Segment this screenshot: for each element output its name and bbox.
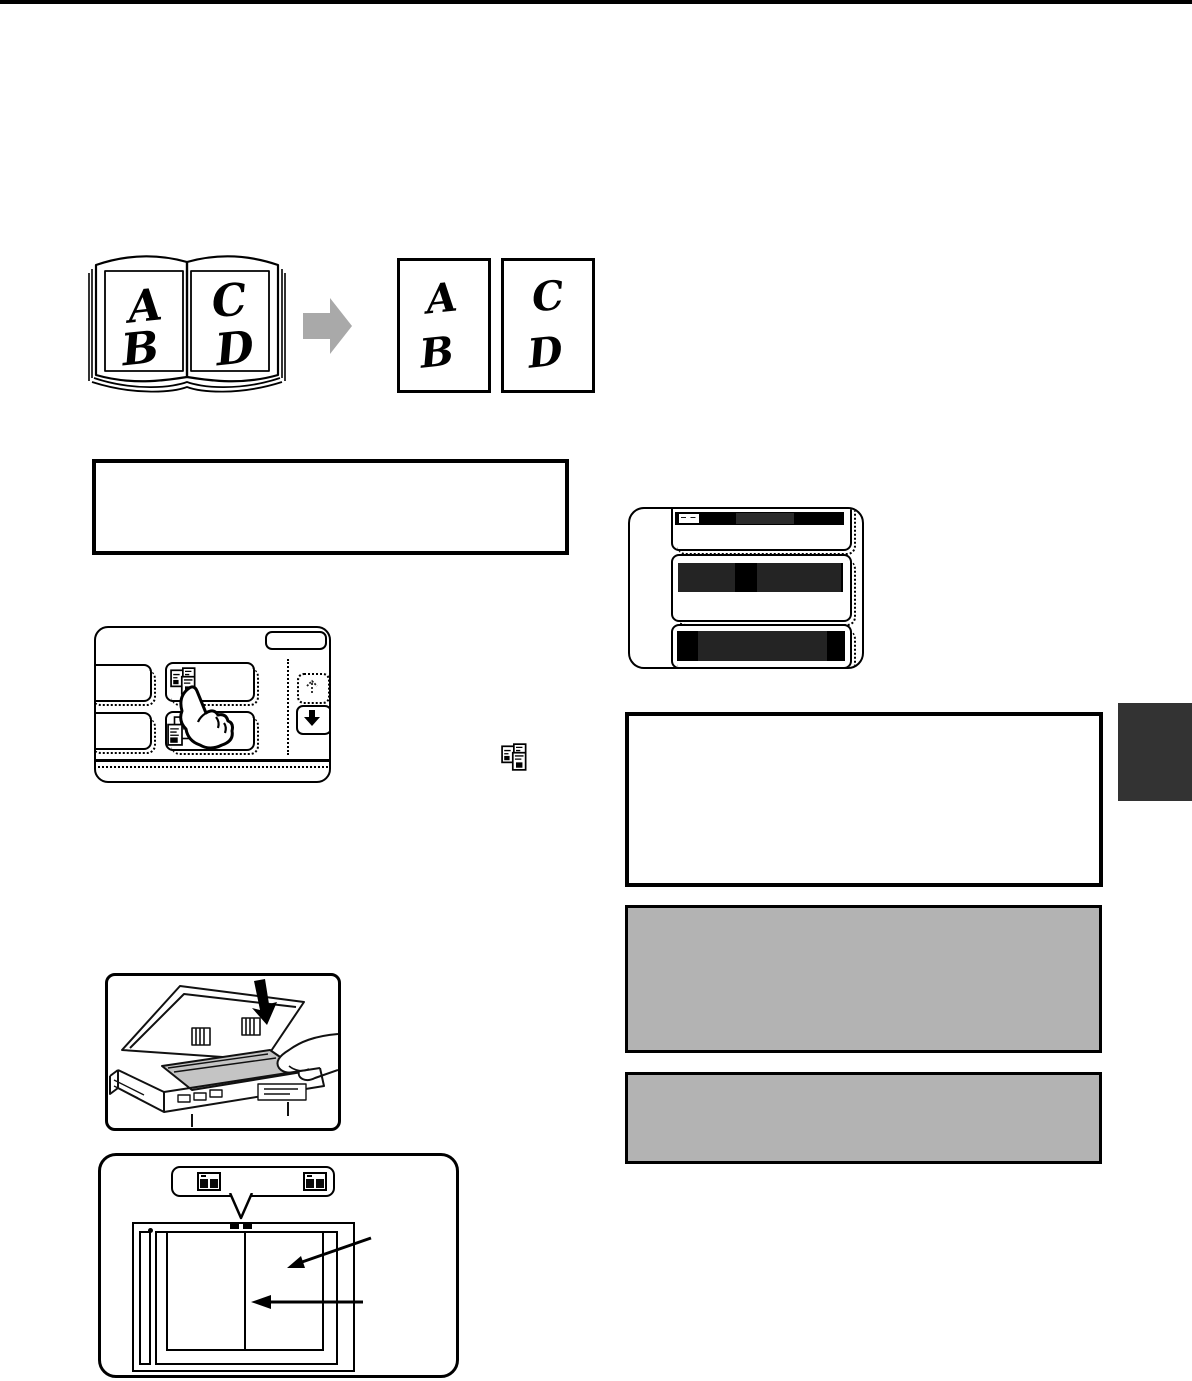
chapter-side-tab — [1118, 703, 1192, 801]
instruction-box — [92, 459, 569, 555]
sheet-letter: C — [530, 271, 567, 321]
sheet-letter: B — [418, 327, 457, 377]
redaction-block — [757, 563, 841, 592]
scroll-up-key — [297, 673, 330, 704]
screen-bottom-dotted-rule — [94, 766, 331, 768]
copier-illustration — [108, 976, 338, 1128]
note-box — [625, 712, 1103, 887]
screen-header-dash-box: ‒ ‒ — [679, 514, 699, 523]
size-mark — [230, 1222, 239, 1229]
scroll-down-key — [296, 705, 331, 735]
touch-panel-screen — [94, 626, 331, 783]
sheet-letter: A — [424, 274, 460, 324]
open-book-mark-icon — [197, 1172, 221, 1191]
redacted-key-2 — [671, 554, 852, 622]
screen-label-box — [265, 631, 327, 650]
book-letter: B — [117, 322, 161, 377]
redacted-key-3-bar — [677, 631, 845, 661]
gray-note-box-1 — [625, 905, 1102, 1053]
transform-arrow-icon — [303, 296, 353, 356]
book-placement-diagram — [98, 1153, 459, 1378]
redacted-title-block — [736, 513, 794, 524]
book-centerline — [244, 1231, 246, 1351]
dash-marks: ‒ ‒ — [681, 514, 697, 522]
page-top-bar — [0, 0, 1192, 4]
document-glass — [132, 1222, 355, 1372]
redaction-block — [678, 563, 735, 592]
size-mark — [243, 1222, 252, 1229]
redacted-key-2-bar — [678, 563, 843, 592]
dual-page-copy-inline-icon — [501, 742, 531, 772]
touch-screen-redacted: ‒ ‒ — [628, 507, 864, 669]
screen-divider-dotted — [287, 659, 289, 755]
redacted-key-1: ‒ ‒ — [671, 507, 852, 551]
screen-bottom-rule — [94, 759, 331, 762]
redacted-key-1-bar: ‒ ‒ — [675, 512, 844, 525]
redaction-block — [698, 631, 827, 661]
pointing-hand-icon — [169, 684, 235, 754]
copy-sheet-1: A B — [397, 258, 491, 393]
sheet-letter: D — [526, 327, 565, 377]
book-letter: C — [209, 274, 249, 328]
screen-key-left-2 — [94, 712, 152, 750]
manual-page: A B C D A B C D — [0, 0, 1192, 1381]
scroll-up-icon — [304, 679, 320, 696]
copy-sheet-2: C D — [501, 258, 595, 393]
open-book-mark-icon — [303, 1172, 327, 1191]
screen-key-left-1 — [94, 664, 152, 702]
glass-edge-strip — [139, 1231, 151, 1365]
redacted-key-3 — [671, 624, 852, 669]
callout-pointer — [211, 1193, 271, 1221]
scroll-down-icon — [303, 710, 321, 727]
copier-illustration-frame — [105, 973, 341, 1131]
figure-book-to-sheets: A B C D A B C D — [86, 246, 606, 406]
gray-note-box-2 — [625, 1072, 1102, 1164]
book-letter: D — [211, 322, 256, 377]
open-book-illustration: A B C D — [86, 246, 288, 403]
